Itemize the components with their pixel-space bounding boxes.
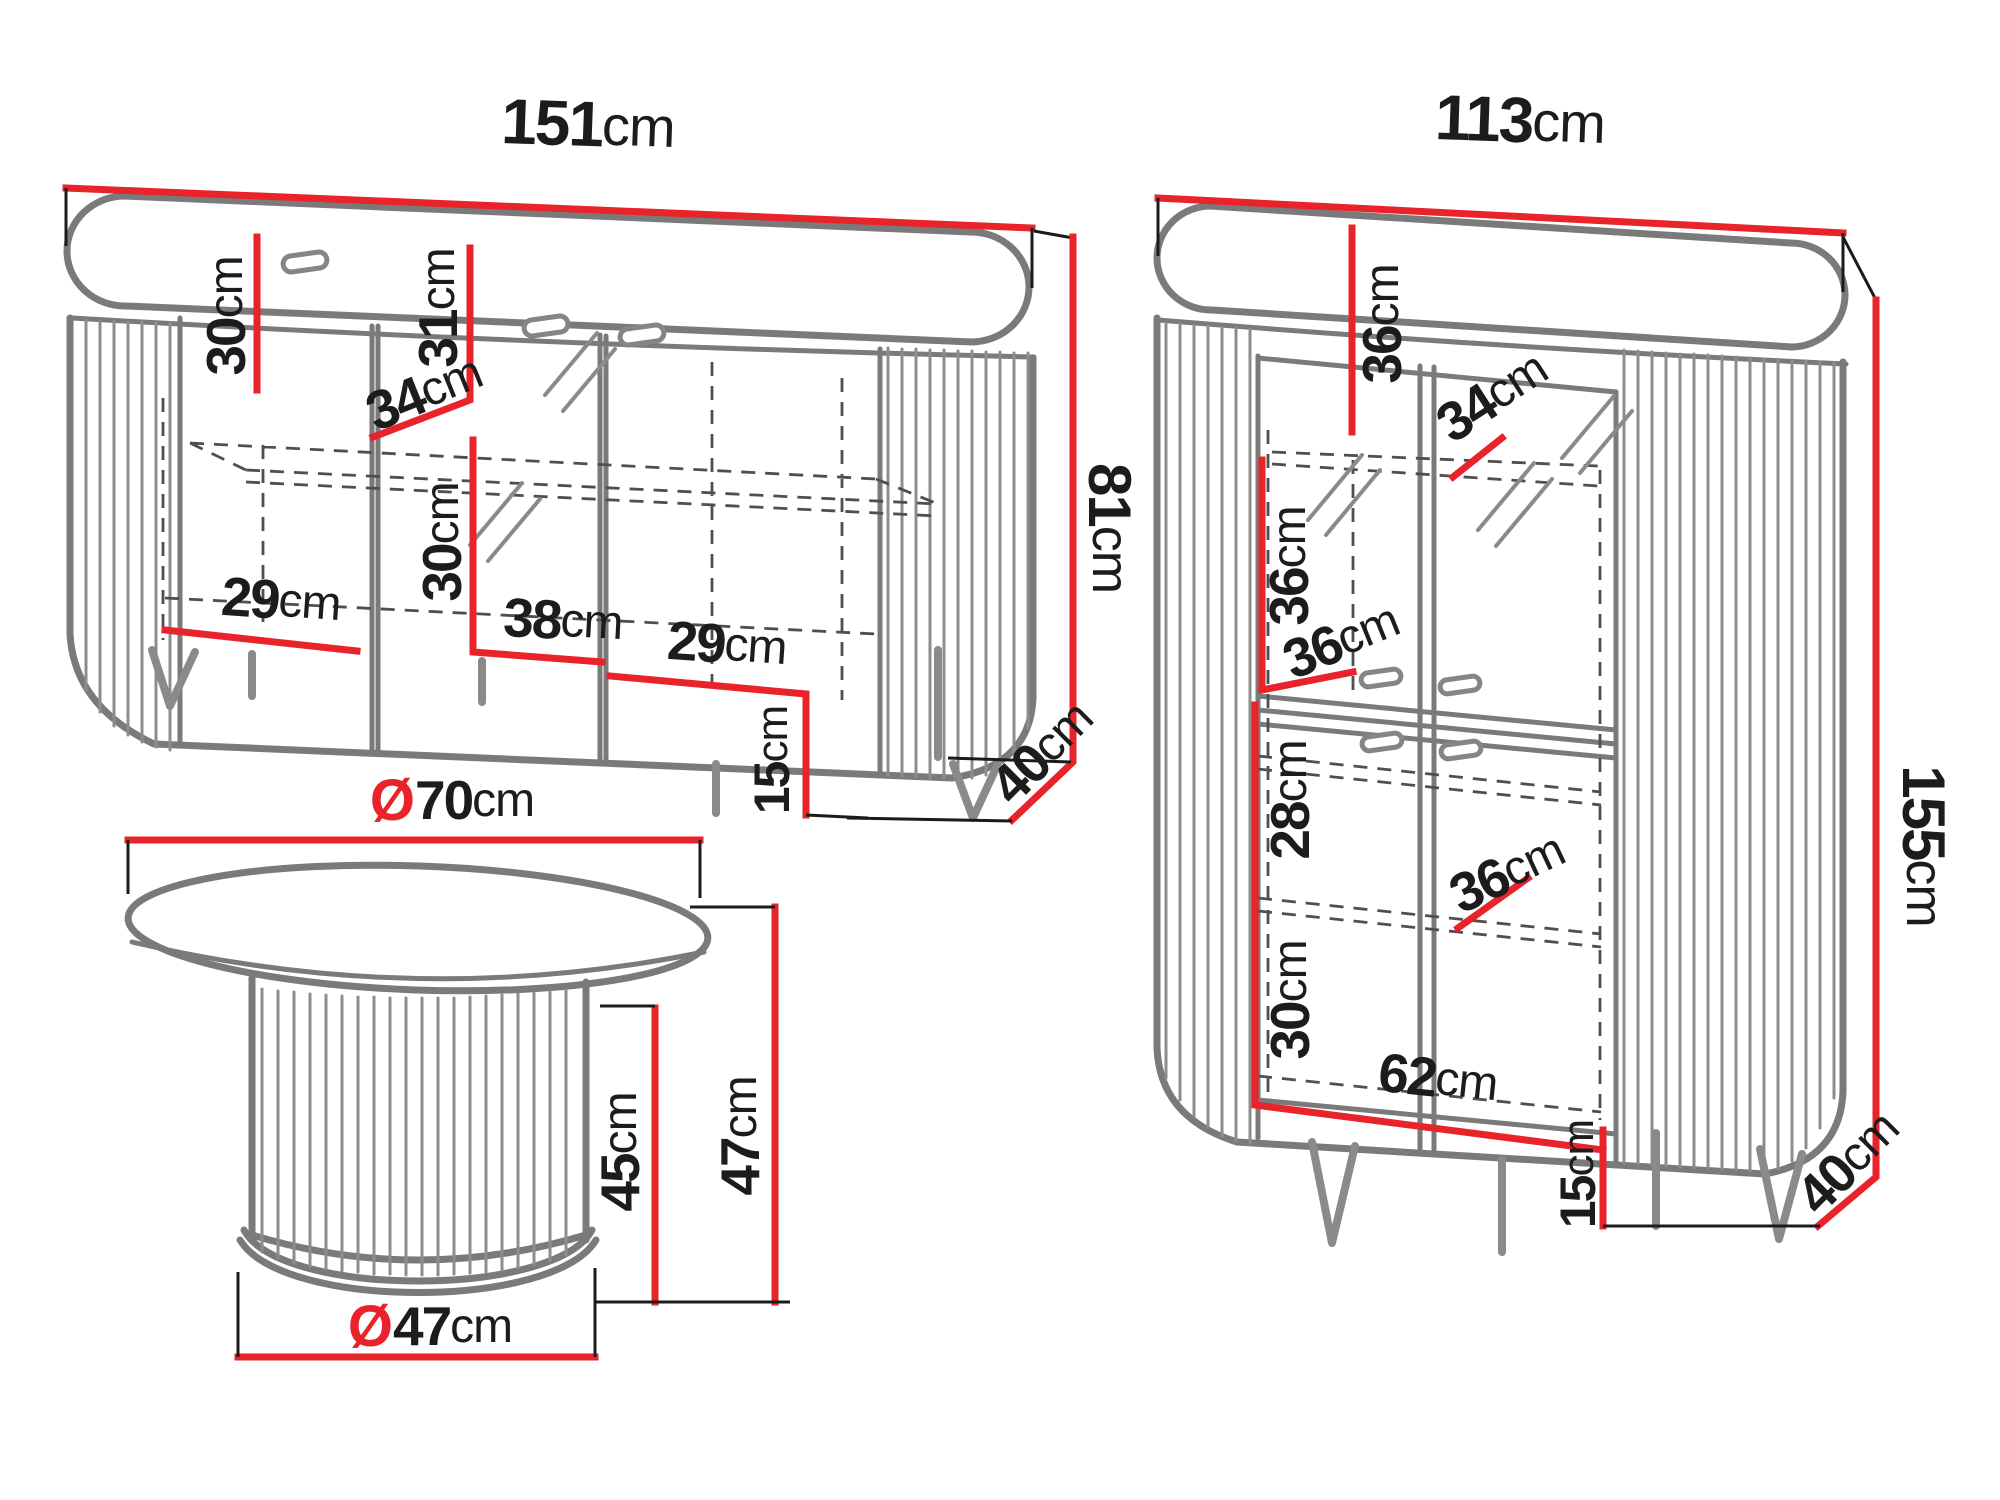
sideboard-glass-lower-label: 30cm bbox=[411, 482, 473, 601]
sideboard-right-fluting bbox=[888, 348, 1028, 779]
sideboard-left-fluting bbox=[86, 320, 170, 750]
handle-icon bbox=[282, 251, 328, 273]
table-top-diameter-label: Ø70cm bbox=[370, 768, 534, 833]
cabinet-height-label: 155cm bbox=[1891, 765, 1958, 926]
sideboard-upper-section-label: 30cm bbox=[195, 256, 257, 375]
table-top-rim bbox=[132, 942, 704, 979]
cabinet-lower-upper-label: 28cm bbox=[1259, 740, 1321, 859]
handle-icon bbox=[1361, 732, 1403, 751]
cabinet-right-fluting bbox=[1624, 350, 1834, 1171]
cabinet-top-section-label: 36cm bbox=[1351, 264, 1413, 383]
sideboard-height-label: 81cm bbox=[1077, 463, 1144, 593]
handle-icon bbox=[523, 315, 569, 337]
sideboard-leg-height-label: 15cm bbox=[744, 706, 800, 814]
sideboard-left-width-line bbox=[165, 630, 357, 651]
table-fluting bbox=[262, 989, 566, 1275]
sideboard-width-label: 151cm bbox=[500, 85, 676, 163]
handle-icon bbox=[1439, 675, 1481, 694]
cabinet-left-fluting bbox=[1166, 323, 1250, 1143]
furniture-dimension-diagram: 151cm 30cm 31cm 34cm 30cm 38cm 29cm 29cm… bbox=[0, 0, 2000, 1500]
diagram-canvas: 151cm 30cm 31cm 34cm 30cm 38cm 29cm 29cm… bbox=[0, 0, 2000, 1500]
handle-icon bbox=[1360, 668, 1402, 687]
cabinet-upper-mid-label: 36cm bbox=[1258, 506, 1320, 625]
table-pedestal bbox=[252, 978, 586, 1260]
sideboard-glass-reflection-marks bbox=[470, 333, 615, 561]
cabinet-lower-shelf-label: 36cm bbox=[1440, 819, 1574, 926]
cabinet-bottom-section-label: 30cm bbox=[1259, 940, 1321, 1059]
sideboard-legs bbox=[152, 650, 997, 818]
sideboard-left-width-label: 29cm bbox=[219, 565, 342, 635]
cabinet-leg-height-label: 15cm bbox=[1550, 1120, 1606, 1228]
sideboard-right-width-label: 29cm bbox=[665, 609, 788, 679]
handle-icon bbox=[619, 324, 665, 346]
cabinet-depth-label: 40cm bbox=[1784, 1098, 1912, 1226]
sideboard-depth-label: 40cm bbox=[978, 688, 1106, 816]
cabinet-height-depth-line bbox=[1818, 300, 1876, 1226]
cabinet-shelf-depth-label: 34cm bbox=[1425, 338, 1559, 455]
sideboard-center-width-label: 38cm bbox=[502, 586, 624, 654]
table-pedestal-height-label: 45cm bbox=[589, 1092, 651, 1211]
table-total-height-label: 47cm bbox=[709, 1076, 771, 1195]
handle-icon bbox=[1440, 740, 1482, 759]
cabinet-bottom-width-label: 62cm bbox=[1376, 1041, 1501, 1115]
table-drawing bbox=[126, 856, 710, 1293]
table-base-diameter-label: Ø47cm bbox=[348, 1294, 512, 1359]
cabinet-width-label: 113cm bbox=[1434, 81, 1606, 159]
sideboard-width-line bbox=[66, 188, 1032, 228]
